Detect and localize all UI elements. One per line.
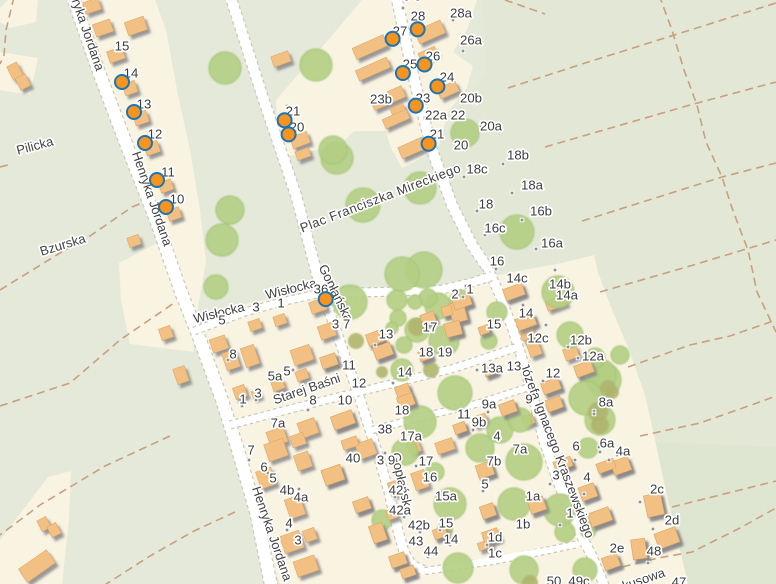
svg-text:26a: 26a	[460, 33, 483, 48]
svg-text:12b: 12b	[570, 333, 592, 348]
svg-text:15: 15	[115, 39, 130, 54]
svg-text:1c: 1c	[488, 546, 502, 561]
svg-text:9: 9	[525, 392, 532, 407]
svg-text:9b: 9b	[472, 415, 487, 430]
svg-text:4b: 4b	[280, 483, 295, 498]
svg-text:15a: 15a	[435, 489, 458, 504]
svg-text:16a: 16a	[541, 236, 564, 251]
svg-text:22: 22	[451, 108, 466, 123]
svg-text:1d: 1d	[488, 530, 503, 545]
svg-text:0 6: 0 6	[403, 0, 421, 4]
svg-text:16c: 16c	[484, 221, 506, 236]
svg-text:17: 17	[419, 454, 434, 469]
svg-text:28: 28	[411, 9, 426, 24]
svg-text:12a: 12a	[582, 349, 605, 364]
svg-text:50: 50	[547, 574, 562, 584]
svg-text:5: 5	[283, 364, 290, 379]
svg-text:12c: 12c	[527, 331, 549, 346]
svg-text:20b: 20b	[460, 91, 482, 106]
svg-text:5a: 5a	[268, 369, 283, 384]
svg-text:15: 15	[439, 516, 454, 531]
svg-text:28a: 28a	[450, 6, 473, 21]
svg-text:16: 16	[423, 470, 438, 485]
svg-text:5: 5	[218, 313, 225, 328]
svg-text:14a: 14a	[556, 288, 579, 303]
svg-text:42: 42	[389, 483, 404, 498]
svg-text:1: 1	[466, 282, 473, 297]
svg-text:8: 8	[309, 393, 316, 408]
svg-text:3 9: 3 9	[377, 453, 395, 468]
svg-text:1b: 1b	[516, 517, 531, 532]
svg-text:18c: 18c	[466, 162, 488, 177]
svg-text:23b: 23b	[370, 92, 392, 107]
svg-text:38: 38	[378, 422, 393, 437]
svg-text:18a: 18a	[521, 178, 544, 193]
svg-text:13: 13	[507, 359, 522, 374]
svg-text:14: 14	[519, 306, 534, 321]
svg-text:48: 48	[647, 544, 662, 559]
svg-text:4a: 4a	[616, 444, 631, 459]
svg-text:22a: 22a	[425, 108, 448, 123]
svg-text:14: 14	[398, 365, 413, 380]
svg-text:6: 6	[260, 460, 267, 475]
svg-text:4: 4	[583, 470, 590, 485]
svg-text:16b: 16b	[530, 204, 552, 219]
svg-text:4: 4	[493, 429, 500, 444]
svg-text:16: 16	[490, 254, 505, 269]
svg-text:17: 17	[423, 320, 438, 335]
svg-text:7a: 7a	[513, 442, 528, 457]
svg-text:1: 1	[566, 506, 573, 521]
svg-text:18: 18	[395, 403, 410, 418]
svg-text:18: 18	[419, 345, 434, 360]
svg-text:2d: 2d	[665, 513, 680, 528]
svg-text:15: 15	[487, 317, 502, 332]
svg-text:42a: 42a	[389, 503, 412, 518]
svg-text:3: 3	[252, 300, 259, 315]
svg-text:2e: 2e	[610, 541, 625, 556]
svg-text:3: 3	[254, 386, 261, 401]
svg-text:7a: 7a	[271, 416, 286, 431]
svg-text:2: 2	[451, 287, 458, 302]
svg-text:19: 19	[438, 345, 453, 360]
svg-text:40: 40	[346, 451, 361, 466]
svg-text:47: 47	[672, 575, 687, 584]
svg-text:8: 8	[229, 347, 236, 362]
svg-text:18b: 18b	[507, 148, 529, 163]
svg-text:42b: 42b	[408, 518, 430, 533]
svg-text:11: 11	[342, 358, 356, 373]
svg-text:7b: 7b	[487, 454, 502, 469]
svg-text:3: 3	[294, 533, 301, 548]
svg-text:1: 1	[277, 296, 284, 311]
svg-text:6a: 6a	[600, 436, 615, 451]
svg-text:8a: 8a	[599, 395, 614, 410]
svg-text:12: 12	[546, 366, 561, 381]
svg-text:10: 10	[338, 393, 353, 408]
svg-text:20: 20	[454, 138, 469, 153]
svg-text:1: 1	[239, 392, 246, 407]
svg-text:7: 7	[247, 443, 254, 458]
svg-text:49c: 49c	[568, 574, 590, 584]
svg-text:18: 18	[479, 197, 494, 212]
svg-text:12: 12	[352, 376, 367, 391]
svg-text:5: 5	[269, 471, 276, 486]
svg-text:2c: 2c	[650, 482, 664, 497]
svg-text:9a: 9a	[482, 397, 497, 412]
svg-text:43: 43	[409, 534, 424, 549]
svg-text:44: 44	[424, 544, 439, 559]
svg-text:14c: 14c	[506, 271, 528, 286]
svg-text:3: 3	[552, 468, 559, 483]
svg-text:13: 13	[379, 327, 394, 342]
svg-text:6: 6	[572, 439, 579, 454]
svg-text:20a: 20a	[480, 119, 503, 134]
svg-text:11: 11	[457, 407, 471, 422]
svg-text:1a: 1a	[526, 489, 541, 504]
svg-text:5: 5	[481, 477, 488, 492]
svg-text:17a: 17a	[400, 429, 423, 444]
svg-text:4a: 4a	[294, 490, 309, 505]
svg-text:4: 4	[285, 516, 292, 531]
svg-text:14: 14	[444, 532, 459, 547]
svg-text:13a: 13a	[481, 361, 504, 376]
svg-text:3 7: 3 7	[332, 317, 350, 332]
